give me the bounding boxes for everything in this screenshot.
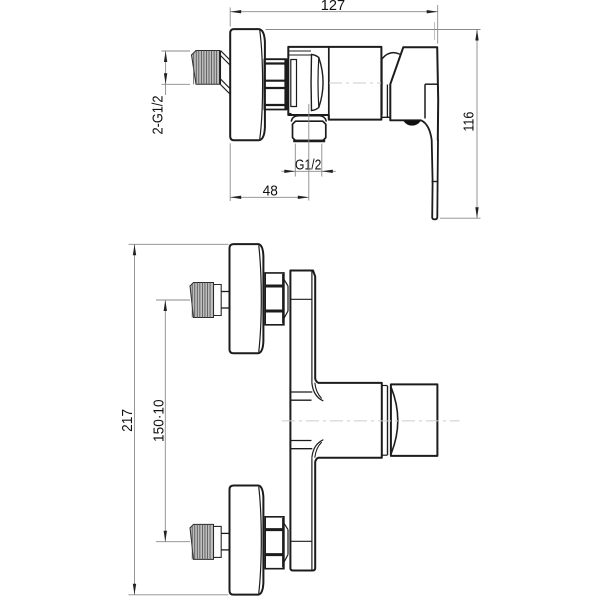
- svg-text:2-G1/2: 2-G1/2: [150, 96, 167, 135]
- svg-text:48: 48: [263, 182, 278, 199]
- svg-text:217: 217: [119, 409, 136, 432]
- svg-text:150·10: 150·10: [151, 399, 168, 442]
- svg-text:127: 127: [321, 0, 345, 14]
- svg-text:G1/2: G1/2: [295, 158, 321, 174]
- svg-text:116: 116: [460, 112, 477, 132]
